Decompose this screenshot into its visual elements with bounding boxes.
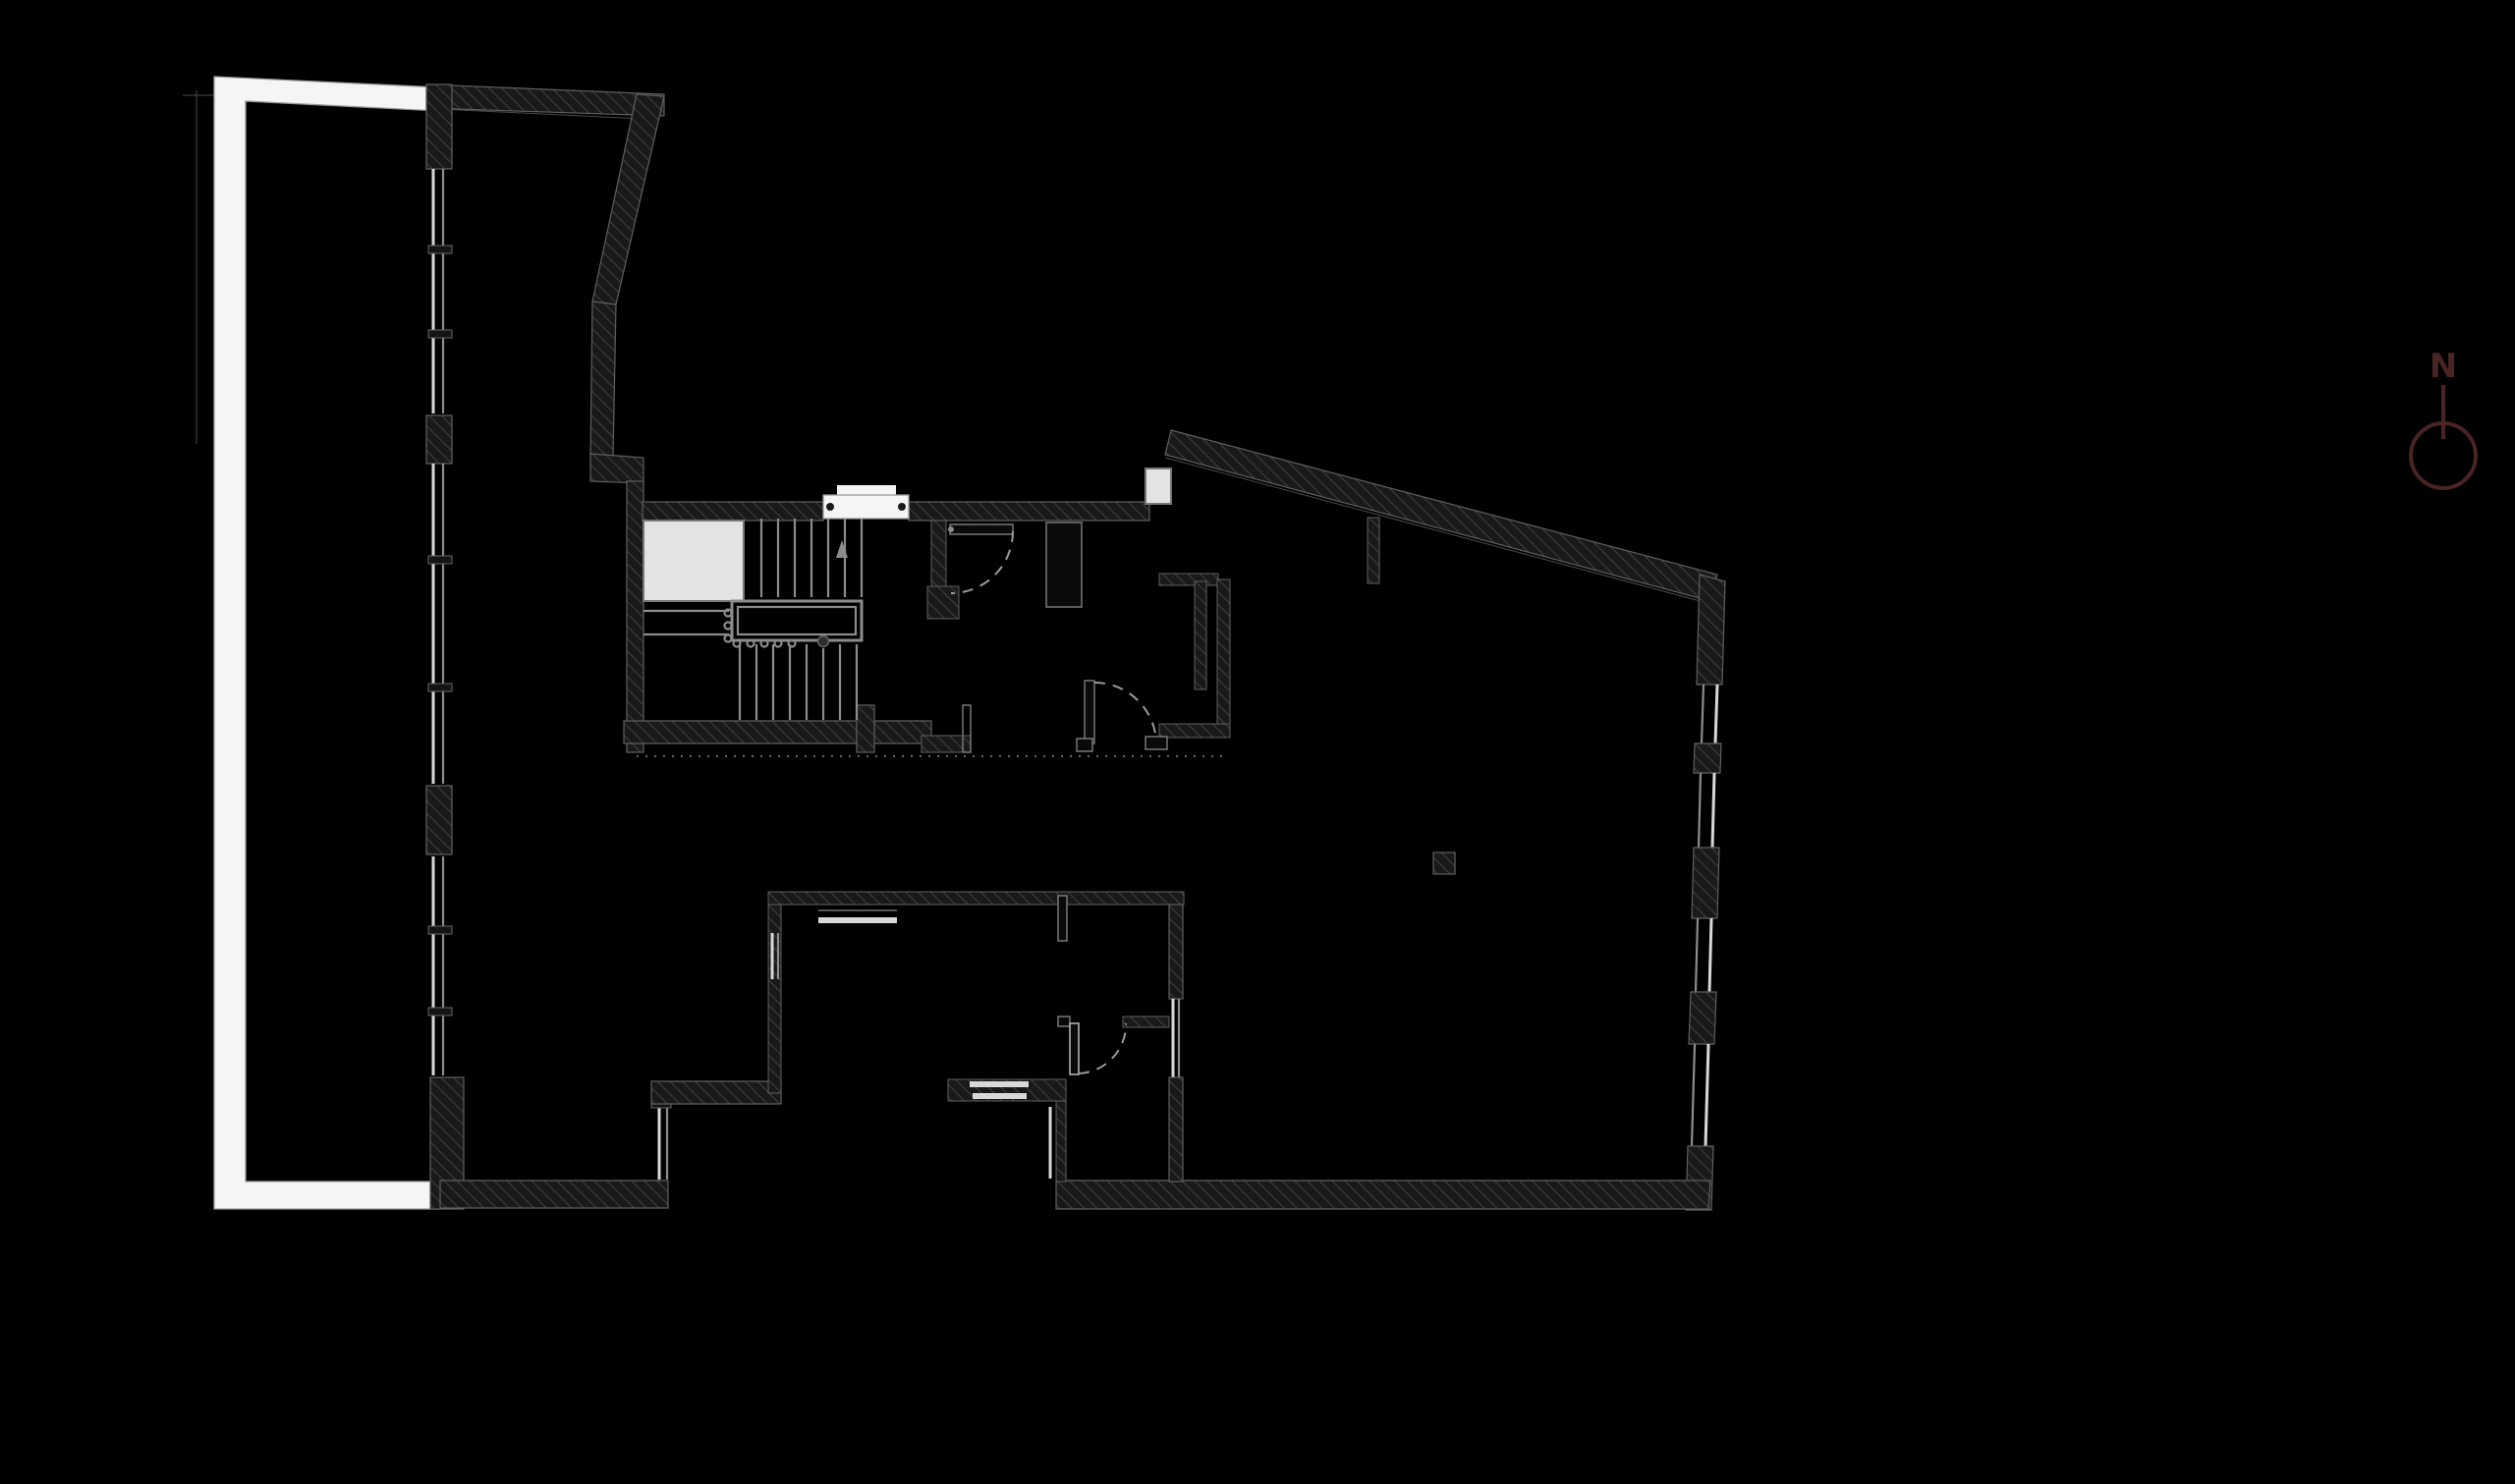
newel-post-icon	[818, 636, 829, 647]
door-leaf	[1085, 681, 1094, 743]
drawing-canvas: N	[0, 0, 2515, 1484]
duct-shaft	[1046, 522, 1082, 607]
column	[1433, 852, 1455, 874]
partition-stub	[1368, 518, 1379, 583]
window-panel	[1146, 468, 1171, 504]
door-hinge-icon	[826, 503, 834, 511]
door-hinge-icon	[898, 503, 906, 511]
elevator-shaft	[643, 521, 744, 601]
door-hinge-icon	[948, 526, 954, 532]
floor-plan-canvas: N	[0, 0, 2515, 1484]
bottom-walls	[440, 1181, 1710, 1209]
door-leaf	[950, 524, 1013, 534]
door-leaf	[1070, 1023, 1079, 1074]
north-label: N	[2430, 347, 2457, 386]
background	[0, 0, 2515, 1484]
